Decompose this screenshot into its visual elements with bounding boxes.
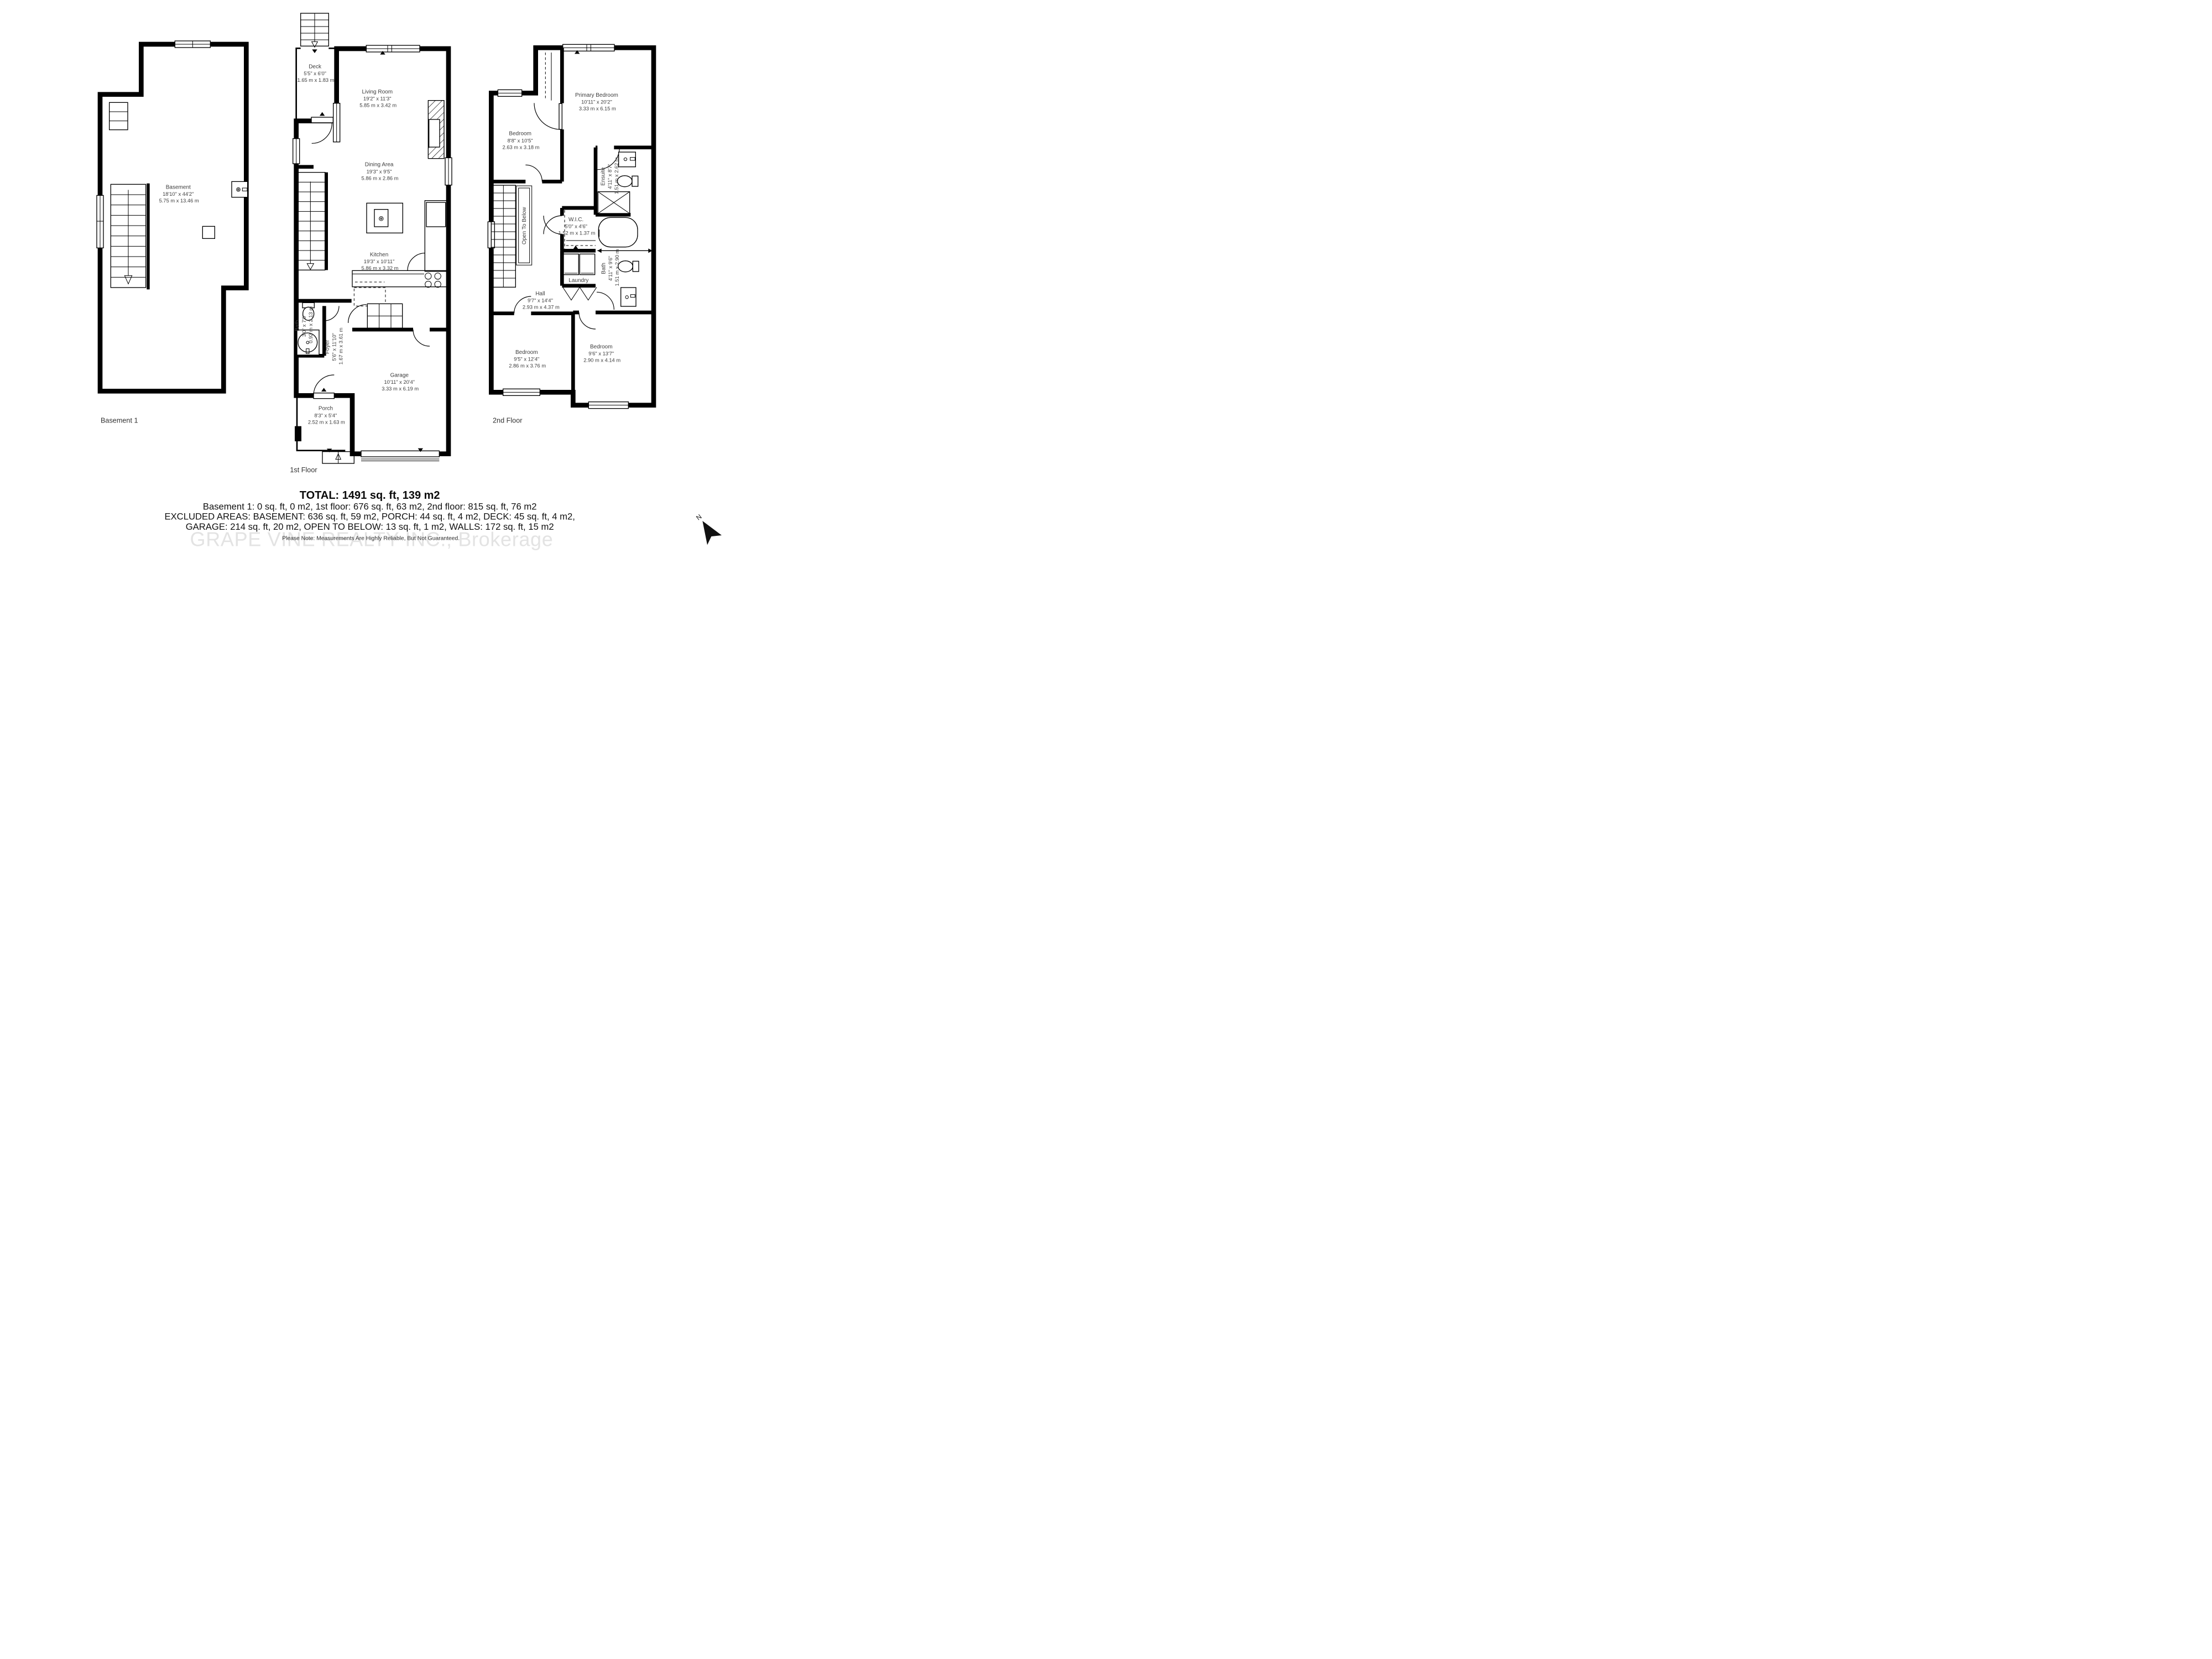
basement-floor-label: Basement 1 xyxy=(101,417,138,425)
floor-areas-text: Basement 1: 0 sq. ft, 0 m2, 1st floor: 6… xyxy=(203,501,537,512)
front-door-icon xyxy=(314,375,334,399)
porch-label: Porch 8'3" x 5'4" 2.52 m x 1.63 m xyxy=(308,406,345,425)
total-area-text: TOTAL: 1491 sq. ft, 139 m2 xyxy=(300,489,440,502)
shower-icon xyxy=(598,192,629,213)
basement-window-left-icon xyxy=(97,195,103,248)
bath-label-second: Bath 4'11" x 9'6" 1.51 m x 2.90 m xyxy=(601,249,620,286)
basement-furnace-icon xyxy=(232,181,248,197)
deck-stairs-icon xyxy=(301,13,329,53)
garage-door-arc-icon xyxy=(413,330,430,346)
basement-utility-closet-icon xyxy=(109,102,128,129)
bedroom-a-door-arc-icon xyxy=(525,165,542,181)
bathtub-icon xyxy=(597,217,652,253)
bedroom-c-window-icon xyxy=(588,402,628,409)
open-to-below-label: Open To Below xyxy=(521,207,528,244)
wic-label: W.I.C. 5'0" x 4'6" 1.52 m x 1.37 m xyxy=(559,217,596,236)
basement-outer-walls xyxy=(100,44,246,391)
bedroom-c-label: Bedroom 9'6" x 13'7" 2.90 m x 4.14 m xyxy=(583,344,620,363)
kitchen-counter-right-icon xyxy=(425,201,447,272)
ensuite-label: Ensuite 4'11" x 8'7" 1.51 m x 2.62 m xyxy=(600,157,619,194)
excluded-areas-text-2: GARAGE: 214 sq. ft, 20 m2, OPEN TO BELOW… xyxy=(186,521,554,532)
primary-bedroom-label: Primary Bedroom 10'11" x 20'2" 3.33 m x … xyxy=(575,92,620,112)
bedroom-a-window-icon xyxy=(498,90,521,96)
living-window-top-icon xyxy=(366,45,420,55)
second-floor-label: 2nd Floor xyxy=(493,417,522,425)
kitchen-counter-bottom-icon xyxy=(352,270,448,306)
deck-door-icon xyxy=(311,112,333,144)
compass-n-label: N xyxy=(695,513,703,521)
summary-block: GRAPE VINE REALTY INC., Brokerage TOTAL:… xyxy=(164,489,575,550)
excluded-areas-text-1: EXCLUDED AREAS: BASEMENT: 636 sq. ft, 59… xyxy=(164,512,575,522)
basement-stairs-icon xyxy=(111,184,149,290)
first-floor-stairs-icon xyxy=(296,173,327,270)
bath-toilet-icon-second xyxy=(618,261,639,272)
disclaimer-note: Please Note: Measurements Are Highly Rel… xyxy=(282,536,460,542)
primary-closet-icon xyxy=(534,48,562,129)
cooktop-icon xyxy=(425,273,441,288)
basement-equipment-box-icon xyxy=(202,226,215,238)
foyer-closet-icon xyxy=(348,304,403,328)
bedroom-a-label: Bedroom 8'8" x 10'5" 2.63 m x 3.18 m xyxy=(503,131,540,150)
north-compass-icon: N xyxy=(695,513,722,545)
basement-plan: Basement 18'10" x 44'2" 5.75 m x 13.46 m… xyxy=(97,41,248,425)
deck-side-window-icon xyxy=(333,103,340,142)
first-floor-plan: Deck 5'5" x 6'0" 1.65 m x 1.83 m Living … xyxy=(290,13,452,474)
ensuite-toilet-icon xyxy=(617,176,638,187)
dining-area-label: Dining Area 19'3" x 9'5" 5.86 m x 2.86 m xyxy=(362,162,399,181)
bedroom-b-label: Bedroom 9'5" x 12'4" 2.86 m x 3.76 m xyxy=(509,349,546,369)
floor-plan-page: Basement 18'10" x 44'2" 5.75 m x 13.46 m… xyxy=(0,0,738,553)
bedroom-c-door-arc-icon xyxy=(579,312,596,329)
primary-window-top-icon xyxy=(563,44,614,54)
garage-door-icon xyxy=(361,448,439,461)
kitchen-island-icon xyxy=(367,203,403,233)
stair-window-left-icon xyxy=(293,139,300,164)
garage-label: Garage 10'11" x 20'4" 3.33 m x 6.19 m xyxy=(382,372,419,392)
bath-sink-icon-second xyxy=(621,288,636,306)
kitchen-label: Kitchen 19'3" x 10'11" 5.86 m x 3.32 m xyxy=(362,252,399,271)
basement-room-label: Basement 18'10" x 44'2" 5.75 m x 13.46 m xyxy=(159,184,199,204)
ensuite-sink-icon xyxy=(619,152,636,167)
laundry-label: Laundry xyxy=(568,278,588,284)
living-room-label: Living Room 19'2" x 11'3" 5.85 m x 3.42 … xyxy=(359,89,397,108)
second-floor-plan: Primary Bedroom 10'11" x 20'2" 3.33 m x … xyxy=(488,44,654,424)
hall-label: Hall 9'7" x 14'4" 2.93 m x 4.37 m xyxy=(523,291,560,310)
basement-window-top-icon xyxy=(175,41,210,48)
first-floor-label: 1st Floor xyxy=(290,466,317,474)
bath-door-arc-icon xyxy=(324,306,339,321)
bedroom-b-window-icon xyxy=(503,389,540,395)
deck-walls xyxy=(296,48,337,119)
foyer-label: Foyer 5'6" x 11'10" 1.67 m x 3.61 m xyxy=(325,327,344,364)
laundry-machines-icon xyxy=(562,251,597,300)
deck-label: Deck 5'5" x 6'0" 1.65 m x 1.83 m xyxy=(298,64,335,83)
bath-door-arc-icon-second xyxy=(597,292,614,310)
fireplace-icon xyxy=(428,101,444,159)
kitchen-door-arc-icon xyxy=(408,253,425,271)
dining-window-right-icon xyxy=(445,158,452,185)
floor-plan-canvas: Basement 18'10" x 44'2" 5.75 m x 13.46 m… xyxy=(0,0,738,553)
